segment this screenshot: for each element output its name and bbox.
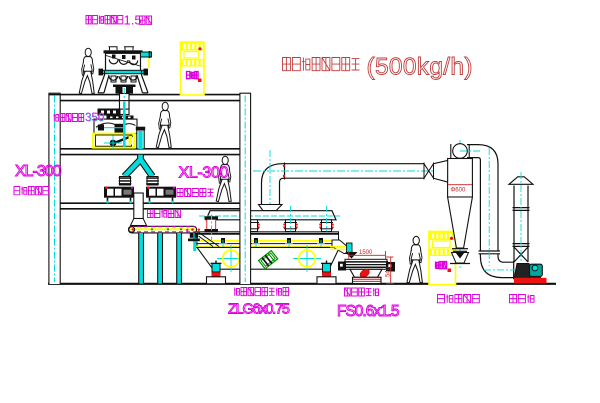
svg-text:350: 350 bbox=[85, 112, 104, 124]
svg-text:(500kg/h): (500kg/h) bbox=[367, 54, 473, 81]
svg-text:540: 540 bbox=[386, 266, 392, 277]
svg-text:FS0.6x1.5: FS0.6x1.5 bbox=[337, 303, 400, 320]
svg-text:Φ600: Φ600 bbox=[451, 188, 466, 194]
svg-text:XL-300: XL-300 bbox=[15, 163, 62, 180]
svg-text:XL-300: XL-300 bbox=[179, 165, 229, 182]
svg-text:1.5: 1.5 bbox=[124, 13, 142, 28]
svg-text:1500: 1500 bbox=[359, 250, 373, 256]
svg-text:ZLG6x0.75: ZLG6x0.75 bbox=[228, 302, 290, 318]
